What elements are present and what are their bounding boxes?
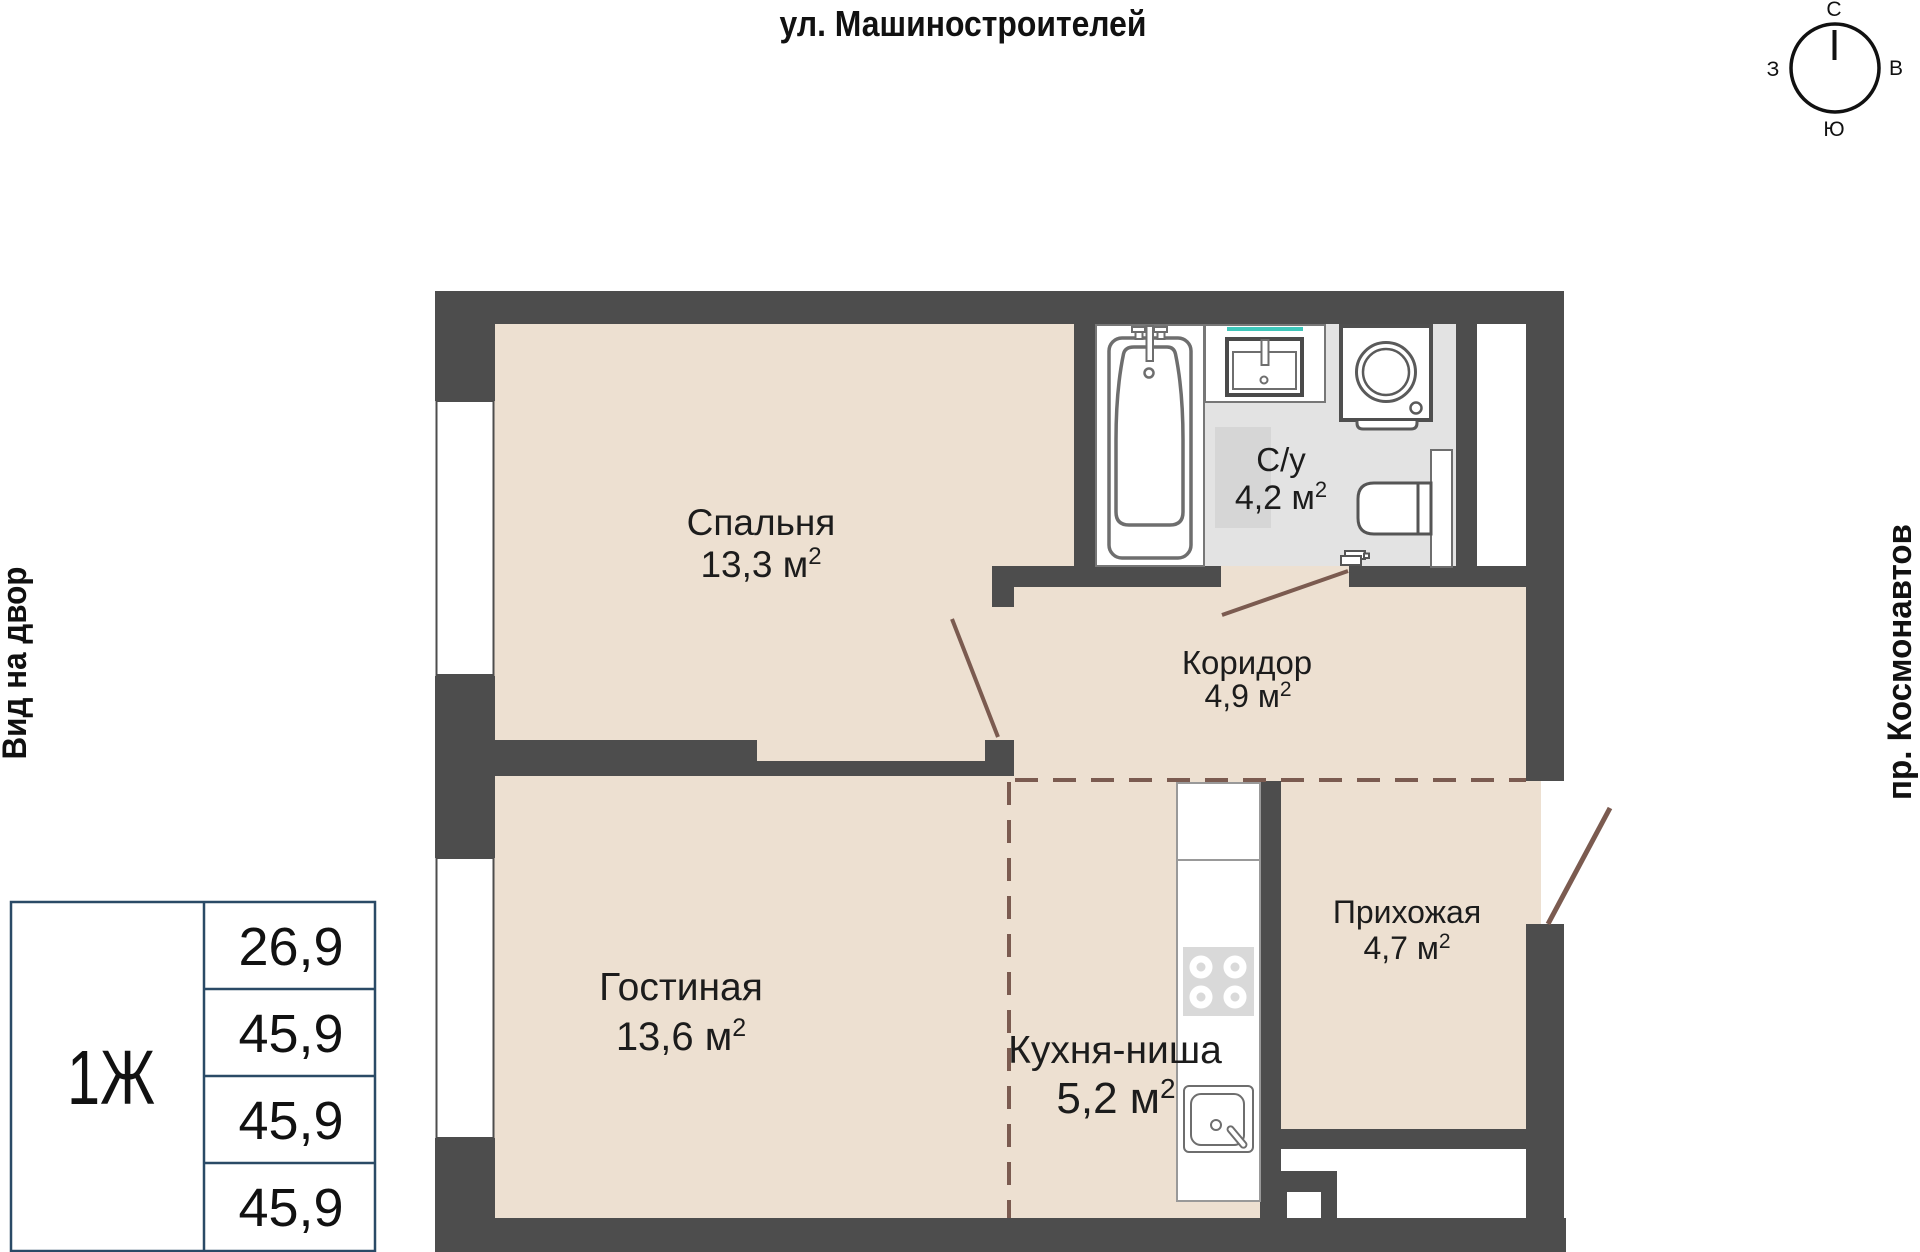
svg-text:4,7 м2: 4,7 м2	[1363, 930, 1450, 966]
svg-text:Ю: Ю	[1823, 118, 1844, 141]
svg-text:Спальня: Спальня	[687, 502, 836, 543]
svg-text:З: З	[1767, 58, 1780, 81]
svg-text:Кухня-ниша: Кухня-ниша	[1008, 1029, 1222, 1072]
svg-text:С/у: С/у	[1256, 441, 1306, 478]
svg-text:1Ж: 1Ж	[67, 1035, 155, 1121]
svg-text:Коридор: Коридор	[1182, 644, 1312, 681]
svg-text:13,3 м2: 13,3 м2	[700, 543, 821, 585]
svg-text:ул. Машиностроителей: ул. Машиностроителей	[780, 3, 1147, 44]
svg-text:45,9: 45,9	[238, 1178, 343, 1238]
svg-text:4,9 м2: 4,9 м2	[1204, 678, 1291, 714]
svg-text:Прихожая: Прихожая	[1333, 894, 1481, 930]
svg-text:Гостиная: Гостиная	[599, 966, 763, 1009]
svg-text:пр. Космонавтов: пр. Космонавтов	[1881, 524, 1919, 800]
svg-text:4,2 м2: 4,2 м2	[1235, 477, 1327, 517]
svg-text:5,2 м2: 5,2 м2	[1056, 1073, 1175, 1123]
svg-text:С: С	[1826, 0, 1841, 21]
svg-text:13,6 м2: 13,6 м2	[616, 1014, 746, 1059]
svg-text:Вид на двор: Вид на двор	[0, 567, 34, 760]
svg-text:45,9: 45,9	[238, 1004, 343, 1064]
svg-text:45,9: 45,9	[238, 1091, 343, 1151]
svg-text:В: В	[1889, 57, 1903, 80]
svg-text:26,9: 26,9	[238, 917, 343, 977]
